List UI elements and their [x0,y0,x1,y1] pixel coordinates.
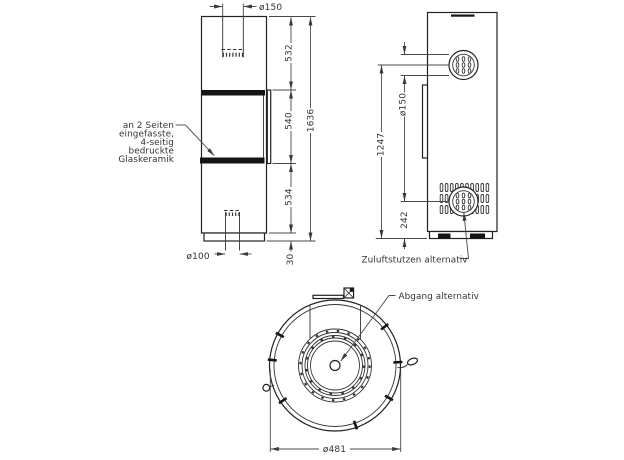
dim-1636-label: 1636 [307,109,317,133]
dim-d150-side: ø150 [398,93,409,117]
dim-d150-top-label: ø150 [259,3,282,13]
top-center-outlet [330,361,340,371]
top-clamp [344,288,354,298]
glass-note-line: Glaskeramik [118,155,174,165]
side-view: 1247 ø150 242 Zuluftstutzen alternativ [362,13,498,266]
zuluft-label: Zuluftstutzen alternativ [362,256,468,266]
side-foot [438,234,451,239]
firebox-top-frame [202,90,266,96]
dim-242-label: 242 [400,211,410,229]
side-glass-panel [423,85,428,158]
front-body [202,17,267,234]
dim-242: 242 [399,211,410,230]
dim-534-label: 534 [285,188,295,206]
dim-534: 534 [284,187,295,207]
front-plinth [204,233,265,241]
dim-d100-label: ø100 [187,252,210,262]
side-foot [470,234,485,239]
abgang-label: Abgang alternativ [399,292,479,302]
firebox-bottom-frame [200,158,265,164]
dim-1636: 1636 [306,108,317,133]
air-intake-port [449,187,478,216]
top-view: ø481 Abgang alternativ [263,288,479,455]
dim-1247: 1247 [376,132,387,157]
top-bracket-bar [313,295,344,298]
dim-30-label: 30 [286,254,296,266]
dim-d150-side-label: ø150 [399,93,409,116]
dim-1247-label: 1247 [377,133,387,157]
side-latch [263,384,274,391]
front-view: 532 540 534 30 1636 ø150 ø100 an 2 Seite… [118,3,316,266]
dim-532: 532 [284,43,295,63]
dim-540-label: 540 [285,112,295,130]
dim-540: 540 [284,111,295,131]
side-top-slot [451,15,475,17]
side-glass-edge-front [267,90,270,164]
dim-d481-label: ø481 [323,445,346,455]
technical-drawing-sheet: 532 540 534 30 1636 ø150 ø100 an 2 Seite… [0,0,624,460]
stove-dimension-drawing: 532 540 534 30 1636 ø150 ø100 an 2 Seite… [0,0,624,460]
glass-note: an 2 Seiten eingefasste, 4-seitig bedruc… [118,121,214,165]
rear-outlet-port [449,51,478,80]
dim-30: 30 [286,253,297,266]
dim-532-label: 532 [285,44,295,62]
